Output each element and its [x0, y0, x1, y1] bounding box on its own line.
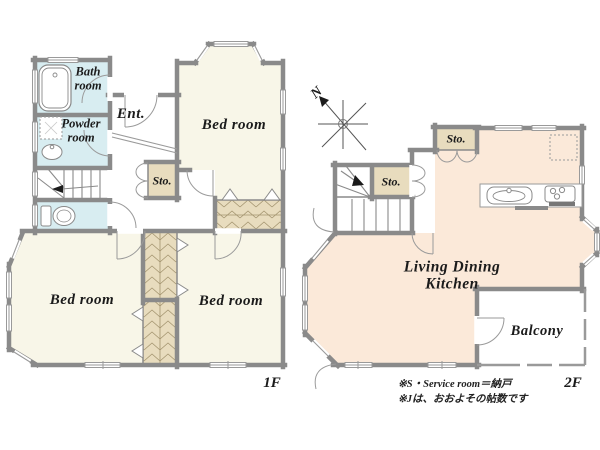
stairs-1f-icon	[38, 169, 100, 199]
compass-icon	[318, 96, 368, 150]
footnote-tatami-count: ※Jは、おおよその帖数です	[398, 391, 528, 406]
washbasin-icon	[42, 145, 62, 160]
stove-icon	[545, 186, 575, 206]
floor1-plan	[7, 42, 286, 370]
kitchen-sink-icon	[487, 187, 532, 204]
toilet-icon	[41, 206, 75, 226]
footnote-service-room: ※S・Service room＝納戸	[398, 376, 512, 391]
floor2-plan	[303, 96, 600, 389]
floor-plan-page: Bath room Powder room Ent. Bed room Sto.…	[0, 0, 600, 450]
washer-icon	[40, 117, 62, 139]
bathtub-icon	[39, 65, 71, 111]
